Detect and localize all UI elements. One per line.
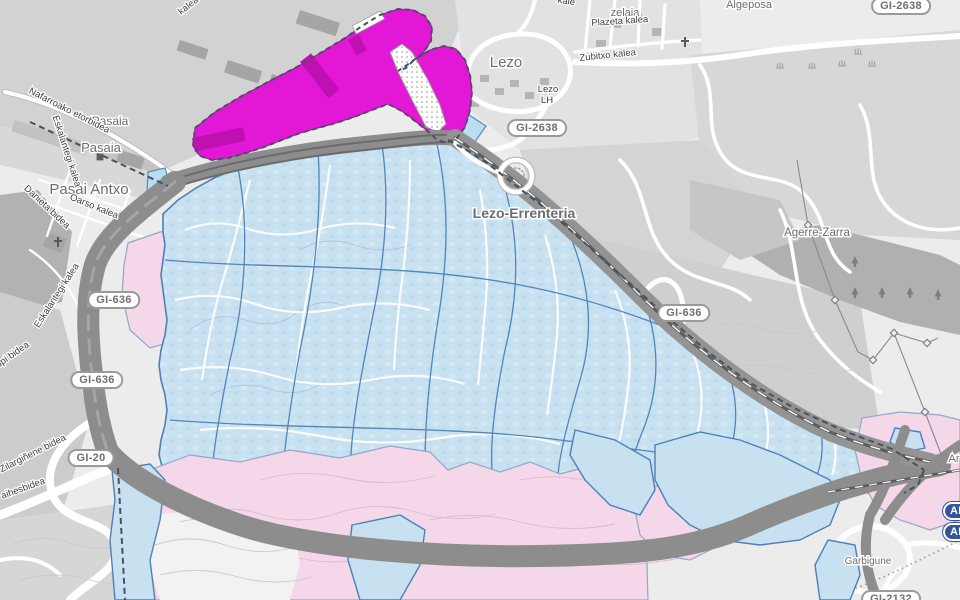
place-label-lezo: Lezo <box>490 54 523 71</box>
place-label-lezo-errenteria: Lezo-Errenteria <box>473 205 576 221</box>
place-label-garbigune: Garbigune <box>845 556 892 567</box>
road-badge-gi-2638-ne: GI-2638 <box>871 0 931 15</box>
road-badge-gi-636-c: GI-636 <box>657 304 710 322</box>
place-label-lezo-lh-1: Lezo <box>538 84 559 95</box>
place-label-ar-partial: Ar <box>949 453 960 465</box>
place-label-pasaia: Pasaia <box>81 140 122 155</box>
road-badge-ap-b: AP <box>943 523 960 541</box>
place-label-agerre-zarra: Agerre-Zarra <box>784 227 850 239</box>
road-badge-gi-636-b: GI-636 <box>70 371 123 389</box>
road-badge-gi-2638: GI-2638 <box>507 119 567 137</box>
road-badge-gi-636-a: GI-636 <box>87 291 140 309</box>
place-label-algeposa: Algeposa <box>726 0 773 11</box>
map-viewport[interactable]: Pasaia Pasaia Pasai Antxo Lezo Lezo-Erre… <box>0 0 960 600</box>
place-label-pasai-antxo: Pasai Antxo <box>49 181 128 198</box>
road-badge-gi-2132: GI-2132 <box>861 590 921 600</box>
place-label-lezo-lh-2: LH <box>541 95 553 106</box>
road-badge-gi-20: GI-20 <box>67 449 114 467</box>
road-badge-ap-a: AP <box>943 502 960 520</box>
map-canvas[interactable]: Pasaia Pasaia Pasai Antxo Lezo Lezo-Erre… <box>0 0 960 600</box>
